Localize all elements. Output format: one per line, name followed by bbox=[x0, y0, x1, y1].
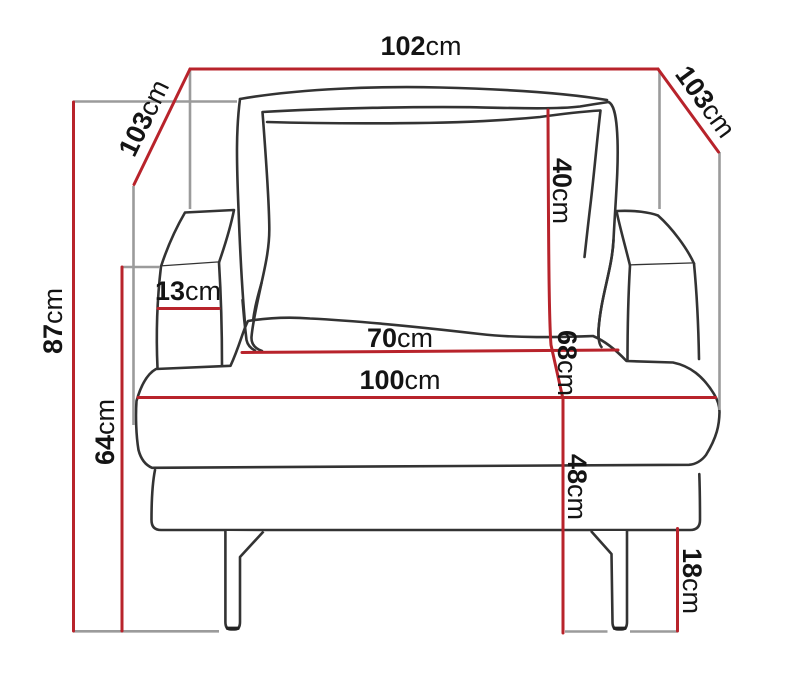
svg-text:18cm: 18cm bbox=[677, 548, 707, 614]
svg-text:68cm: 68cm bbox=[552, 330, 582, 396]
svg-text:102cm: 102cm bbox=[380, 31, 461, 61]
svg-text:48cm: 48cm bbox=[562, 454, 592, 520]
svg-text:87cm: 87cm bbox=[38, 288, 68, 354]
svg-text:13cm: 13cm bbox=[155, 276, 221, 306]
svg-text:70cm: 70cm bbox=[367, 323, 433, 353]
svg-text:100cm: 100cm bbox=[359, 365, 440, 395]
svg-text:40cm: 40cm bbox=[547, 158, 577, 224]
svg-text:64cm: 64cm bbox=[90, 399, 120, 465]
